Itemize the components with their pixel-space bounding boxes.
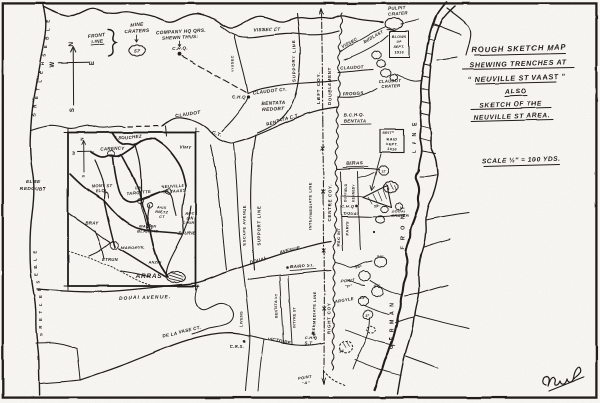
svg-text:ROC: ROC (185, 212, 194, 216)
svg-text:FRONT: FRONT (401, 200, 407, 249)
svg-text:ESCAPE AVENUE: ESCAPE AVENUE (242, 205, 247, 246)
svg-text:SUPPORT LINE: SUPPORT LINE (257, 205, 262, 246)
svg-text:57: 57 (134, 49, 140, 54)
svg-text:LIVENS: LIVENS (240, 311, 244, 327)
svg-text:1916: 1916 (395, 51, 405, 55)
svg-text:LIN: LIN (186, 216, 193, 220)
svg-text:L: L (38, 303, 43, 306)
svg-text:14: 14 (339, 348, 345, 353)
svg-text:C.H.Q: C.H.Q (305, 335, 318, 340)
svg-text:S: S (36, 280, 41, 283)
svg-text:S.T.: S.T. (304, 340, 313, 345)
svg-text:3ᶜ: 3ᶜ (366, 314, 370, 318)
svg-text:C.H.Q: C.H.Q (232, 95, 246, 100)
svg-text:S: S (70, 108, 76, 112)
svg-text:BLANCHE: BLANCHE (137, 229, 159, 234)
svg-text:INTYRE ST: INTYRE ST (293, 306, 297, 328)
svg-text:S: S (39, 333, 44, 336)
svg-text:UP: UP (397, 40, 403, 44)
svg-text:33ᶜ: 33ᶜ (377, 255, 384, 259)
svg-text:CENTRE COY.: CENTRE COY. (328, 184, 333, 222)
svg-text:BRITᴴ: BRITᴴ (383, 131, 395, 135)
svg-text:ALSO: ALSO (504, 88, 527, 96)
svg-text:KENNEDY: KENNEDY (352, 184, 356, 202)
svg-text:COURT: COURT (182, 221, 197, 225)
svg-text:SEPT.: SEPT. (386, 143, 398, 147)
svg-text:N: N (80, 137, 85, 140)
svg-text:W: W (50, 61, 56, 67)
svg-text:BENTATA: BENTATA (344, 119, 367, 124)
svg-text:REDOUBT: REDOUBT (20, 186, 47, 192)
svg-text:AUX: AUX (157, 206, 167, 210)
svg-text:SUPPORT LINE: SUPPORT LINE (292, 39, 297, 82)
svg-text:E: E (34, 273, 39, 276)
svg-text:LINE: LINE (412, 116, 418, 153)
svg-text:H: H (40, 62, 45, 65)
svg-text:ANZIN: ANZIN (147, 261, 161, 265)
svg-text:ELBE: ELBE (26, 179, 40, 185)
svg-text:VIMY: VIMY (180, 145, 193, 150)
svg-text:E: E (43, 45, 48, 48)
svg-text:W: W (71, 151, 76, 155)
svg-text:L: L (46, 28, 51, 31)
svg-text:S: S (32, 113, 37, 116)
svg-text:C.H.Q.: C.H.Q. (172, 46, 188, 51)
svg-text:E: E (38, 295, 43, 298)
svg-text:“A”: “A” (302, 381, 310, 386)
svg-text:MAC INT: MAC INT (337, 228, 341, 246)
svg-text:ARRAS: ARRAS (135, 273, 163, 280)
svg-text:58ᶜ: 58ᶜ (374, 204, 380, 208)
svg-text:INTERMEDIATE LINE: INTERMEDIATE LINE (312, 291, 317, 338)
svg-text:E: E (38, 318, 43, 321)
svg-text:LEFT COY.: LEFT COY. (316, 72, 321, 104)
svg-text:GERMAN: GERMAN (390, 298, 396, 349)
svg-text:SEPT.: SEPT. (393, 45, 405, 49)
svg-text:E: E (33, 250, 38, 253)
svg-text:T: T (36, 87, 41, 90)
svg-text:C.R.S.: C.R.S. (230, 344, 244, 349)
svg-text:VISSEC: VISSEC (231, 55, 235, 72)
svg-text:BENTATA ST: BENTATA ST (275, 293, 279, 318)
svg-text:REDOBT: REDOBT (262, 106, 285, 113)
svg-text:MAROEUIL: MAROEUIL (121, 245, 145, 250)
svg-text:E: E (90, 61, 96, 65)
svg-text:DOUBLEMENT: DOUBLEMENT (327, 67, 332, 105)
svg-text:R: R (38, 325, 43, 328)
svg-text:RAID: RAID (387, 138, 397, 142)
svg-text:S: S (42, 53, 47, 56)
svg-text:E: E (46, 19, 51, 22)
svg-text:1916: 1916 (387, 148, 397, 152)
svg-text:ELOI: ELOI (95, 188, 107, 194)
svg-text:RIETZ: RIETZ (156, 211, 169, 215)
svg-text:B.C.H.Q.: B.C.H.Q. (344, 113, 365, 118)
svg-text:S: S (81, 174, 86, 177)
svg-text:BRAY: BRAY (85, 221, 99, 226)
svg-text:CT: CT (159, 215, 165, 219)
svg-text:B: B (45, 36, 50, 39)
svg-text:E: E (39, 70, 44, 73)
svg-text:DUFFIELD: DUFFIELD (344, 183, 348, 202)
svg-text:BLOWN: BLOWN (392, 35, 407, 39)
svg-text:VISSEC CT: VISSEC CT (253, 27, 281, 33)
svg-text:15ᶜ: 15ᶜ (360, 296, 367, 300)
svg-text:ETRUN: ETRUN (102, 257, 119, 262)
svg-text:B: B (33, 265, 38, 268)
svg-text:ECURIE: ECURIE (178, 230, 196, 235)
svg-text:DOUAI: DOUAI (344, 211, 359, 216)
svg-text:L: L (37, 79, 42, 82)
svg-text:T: T (38, 310, 43, 313)
svg-text:C.H.Q: C.H.Q (342, 204, 355, 209)
svg-text:INTERMEDIATE LINE: INTERMEDIATE LINE (308, 182, 313, 230)
svg-text:E: E (34, 96, 39, 99)
svg-text:L: L (33, 258, 38, 261)
svg-text:“D”: “D” (345, 284, 353, 289)
svg-text:RIGHT COY: RIGHT COY (327, 302, 332, 334)
svg-text:N: N (68, 41, 75, 46)
svg-text:MINE: MINE (130, 22, 144, 29)
svg-text:PARIS: PARIS (345, 221, 350, 235)
svg-text:R: R (33, 104, 38, 108)
svg-text:27: 27 (381, 170, 386, 174)
svg-text:CRATER: CRATER (381, 83, 400, 89)
